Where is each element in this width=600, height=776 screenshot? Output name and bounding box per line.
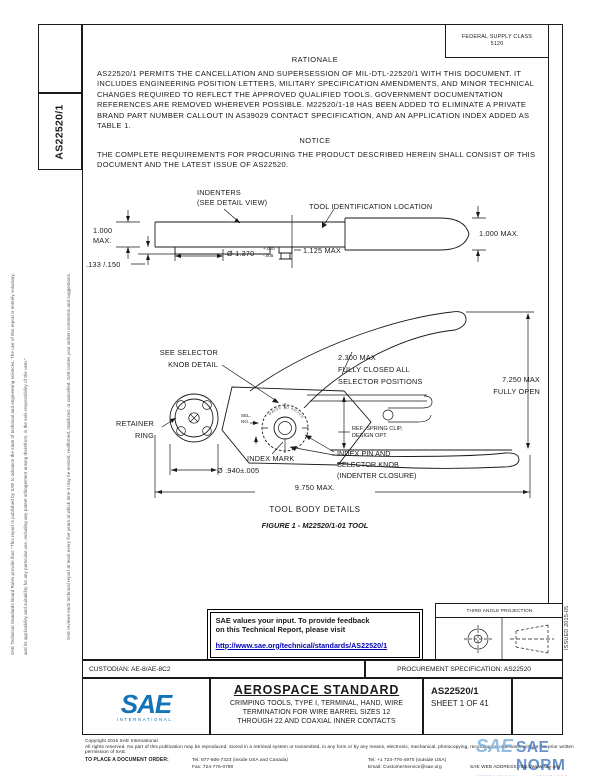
doc-number-cell: AS22520/1 SHEET 1 OF 41 bbox=[423, 678, 512, 735]
top-left-empty-box bbox=[38, 24, 82, 93]
side-doc-number: AS22520/1 bbox=[54, 104, 66, 159]
feedback-line1: SAE values your input. To provide feedba… bbox=[216, 616, 415, 626]
dim-nut: 1.125 MAX bbox=[303, 246, 341, 256]
sel-no-label: SEL. NO. bbox=[241, 413, 251, 424]
tel-inside: Tel: 877-606-7323 (inside USA and Canada… bbox=[192, 757, 288, 762]
doc-number: AS22520/1 bbox=[431, 686, 511, 697]
tel-outside: Tel: +1 724-776-4970 (outside USA) bbox=[368, 757, 446, 762]
rationale-body: AS22520/1 PERMITS THE CANCELLATION AND S… bbox=[97, 69, 557, 132]
order-label: TO PLACE A DOCUMENT ORDER: bbox=[85, 757, 169, 763]
third-angle-projection-label: THIRD ANGLE PROJECTION bbox=[436, 604, 563, 618]
custodian-cell: CUSTODIAN: AE-8/AE-8C2 bbox=[82, 660, 365, 678]
index-pin-label: INDEX PIN AND SELECTOR KNOB (INDENTER CL… bbox=[337, 448, 416, 481]
sae-norm-watermark: SAE SAE NORM INTERNATIONAL. — STANDARDS … bbox=[476, 736, 600, 776]
dim-open-label: 7.250 MAX FULLY OPEN bbox=[452, 374, 540, 398]
standard-type: AEROSPACE STANDARD bbox=[211, 683, 422, 697]
dim-diameter-tol-lower: -.005 bbox=[263, 253, 273, 258]
dim-length-label: 9.750 MAX. bbox=[255, 483, 375, 493]
side-doc-number-box: AS22520/1 bbox=[38, 93, 82, 170]
standard-title-cell: AEROSPACE STANDARD CRIMPING TOOLS, TYPE … bbox=[210, 678, 423, 735]
standard-title: CRIMPING TOOLS, TYPE I, TERMINAL, HAND, … bbox=[211, 700, 422, 726]
margin-note-1: SAE Technical Standards Board Rules prov… bbox=[10, 273, 15, 655]
notice-heading: NOTICE bbox=[82, 136, 548, 145]
dim-flange: .133 /.150 bbox=[86, 260, 120, 270]
figure-caption: FIGURE 1 - M22520/1-01 TOOL bbox=[82, 521, 548, 530]
tool-id-label: TOOL IDENTIFICATION LOCATION bbox=[309, 202, 432, 212]
federal-supply-class: FEDERAL SUPPLY CLASS 5120 bbox=[462, 34, 532, 48]
dim-closed-label: 2.300 MAX FULLY CLOSED ALL SELECTOR POSI… bbox=[338, 352, 423, 388]
figure-subtitle: TOOL BODY DETAILS bbox=[82, 505, 548, 514]
feedback-box: SAE values your input. To provide feedba… bbox=[207, 609, 423, 660]
document-page: SAE Technical Standards Board Rules prov… bbox=[0, 0, 600, 776]
sae-logo-subtext: INTERNATIONAL. bbox=[117, 717, 175, 722]
feedback-line2: on this Technical Report, please visit bbox=[216, 625, 415, 635]
watermark-name: SAE NORM bbox=[516, 739, 600, 775]
figure2-drawing: RAISE TO ADJUST bbox=[82, 295, 548, 535]
notice-body: THE COMPLETE REQUIREMENTS FOR PROCURING … bbox=[97, 150, 557, 171]
sae-logo-cell: SAE INTERNATIONAL. bbox=[82, 678, 210, 735]
watermark-sae-icon: SAE bbox=[476, 736, 513, 757]
selector-detail-label: SEE SELECTOR KNOB DETAIL bbox=[132, 347, 218, 371]
federal-supply-class-box: FEDERAL SUPPLY CLASS 5120 bbox=[445, 24, 548, 58]
dim-height-left: 1.000 MAX. bbox=[93, 226, 112, 245]
rationale-heading: RATIONALE bbox=[82, 55, 548, 64]
copyright-line: Copyright 2015 SAE International bbox=[85, 738, 158, 743]
index-mark-label: INDEX MARK bbox=[247, 454, 294, 464]
feedback-link[interactable]: http://www.sae.org/technical/standards/A… bbox=[216, 641, 388, 650]
indenters-label: INDENTERS (SEE DETAIL VIEW) bbox=[197, 188, 267, 207]
dim-height-right: 1.000 MAX. bbox=[479, 229, 519, 239]
sae-logo: SAE bbox=[121, 692, 171, 716]
margin-note-2: and its applicability and suitability fo… bbox=[23, 358, 28, 655]
issued-date: ISSUED 2015-05 bbox=[564, 606, 570, 650]
dim-ring-label: Ø .940±.005 bbox=[217, 466, 259, 476]
figure1-drawing bbox=[82, 183, 548, 295]
spring-clip-label: REF: SPRING CLIP, DESIGN OPT. bbox=[352, 426, 403, 441]
email: Email: CustomerService@sae.org bbox=[368, 764, 442, 769]
procurement-cell: PROCUREMENT SPECIFICATION: AS22520 bbox=[365, 660, 563, 678]
retainer-ring-label: RETAINER RING bbox=[88, 418, 154, 442]
third-angle-projection-box: THIRD ANGLE PROJECTION bbox=[435, 603, 563, 660]
third-angle-projection-icon bbox=[436, 618, 562, 660]
revision-cell bbox=[512, 678, 563, 735]
fax: Fax: 724-776-0790 bbox=[192, 764, 233, 769]
web-address: SAE WEB ADDRESS: http://www.sae.org bbox=[470, 764, 560, 769]
margin-note-3: SAE reviews each technical report at lea… bbox=[66, 273, 71, 640]
dim-diameter: Ø 1.370 bbox=[227, 249, 254, 259]
dim-diameter-tol-upper: +.000 bbox=[263, 246, 275, 251]
sheet-number: SHEET 1 OF 41 bbox=[431, 699, 511, 708]
